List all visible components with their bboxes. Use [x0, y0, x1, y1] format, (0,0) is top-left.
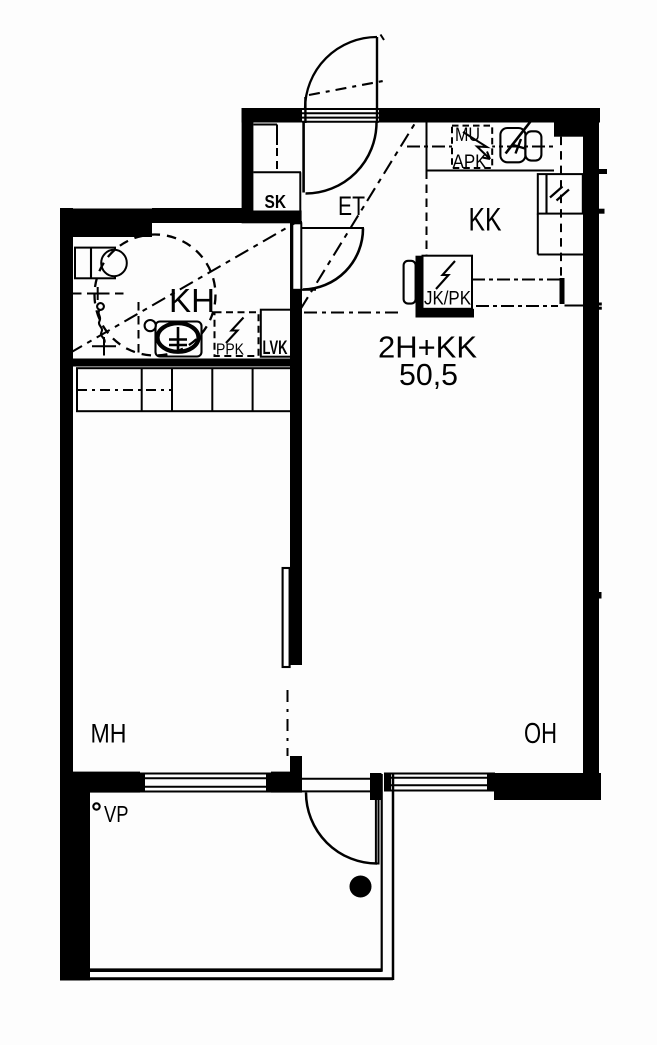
svg-text:APK: APK — [453, 152, 487, 173]
svg-text:50,5: 50,5 — [399, 358, 458, 392]
svg-text:JK/PK: JK/PK — [424, 289, 471, 310]
svg-text:MH: MH — [91, 719, 127, 749]
svg-text:SK: SK — [265, 192, 287, 212]
svg-text:MU: MU — [455, 125, 480, 146]
svg-text:OH: OH — [524, 718, 557, 750]
svg-text:ET: ET — [338, 191, 365, 221]
svg-text:LVK: LVK — [263, 338, 288, 359]
svg-text:PPK: PPK — [216, 342, 244, 359]
svg-text:KK: KK — [469, 202, 502, 238]
svg-text:VP: VP — [104, 801, 129, 827]
svg-text:KH: KH — [169, 282, 215, 319]
